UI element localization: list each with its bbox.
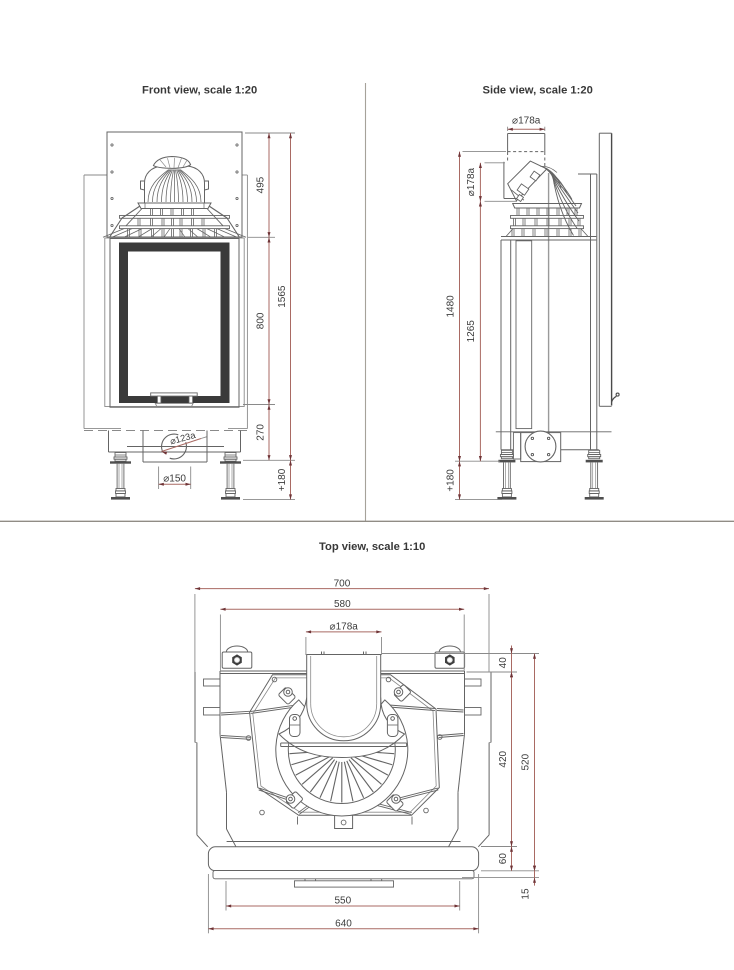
svg-text:550: 550 bbox=[335, 896, 352, 907]
svg-text:640: 640 bbox=[335, 919, 352, 930]
svg-text:⌀150: ⌀150 bbox=[163, 473, 186, 484]
svg-text:Side view, scale 1:20: Side view, scale 1:20 bbox=[483, 84, 593, 96]
svg-text:270: 270 bbox=[256, 424, 267, 441]
svg-text:40: 40 bbox=[498, 657, 509, 669]
svg-text:⌀178a: ⌀178a bbox=[512, 116, 541, 127]
svg-text:495: 495 bbox=[256, 176, 267, 193]
svg-text:⌀178a: ⌀178a bbox=[330, 622, 359, 633]
svg-text:1480: 1480 bbox=[445, 295, 456, 318]
svg-text:700: 700 bbox=[334, 578, 351, 589]
svg-text:60: 60 bbox=[498, 853, 509, 865]
svg-text:15: 15 bbox=[521, 888, 532, 900]
svg-text:420: 420 bbox=[498, 750, 509, 767]
svg-text:Top view, scale 1:10: Top view, scale 1:10 bbox=[319, 541, 425, 553]
svg-text:+180: +180 bbox=[445, 469, 456, 492]
svg-text:800: 800 bbox=[256, 312, 267, 329]
svg-text:Front view, scale 1:20: Front view, scale 1:20 bbox=[142, 84, 257, 96]
svg-text:1565: 1565 bbox=[277, 285, 288, 308]
svg-text:520: 520 bbox=[521, 753, 532, 770]
svg-text:580: 580 bbox=[334, 599, 351, 610]
svg-text:+180: +180 bbox=[277, 468, 288, 491]
svg-text:⌀178a: ⌀178a bbox=[466, 167, 477, 196]
svg-text:1265: 1265 bbox=[466, 320, 477, 343]
